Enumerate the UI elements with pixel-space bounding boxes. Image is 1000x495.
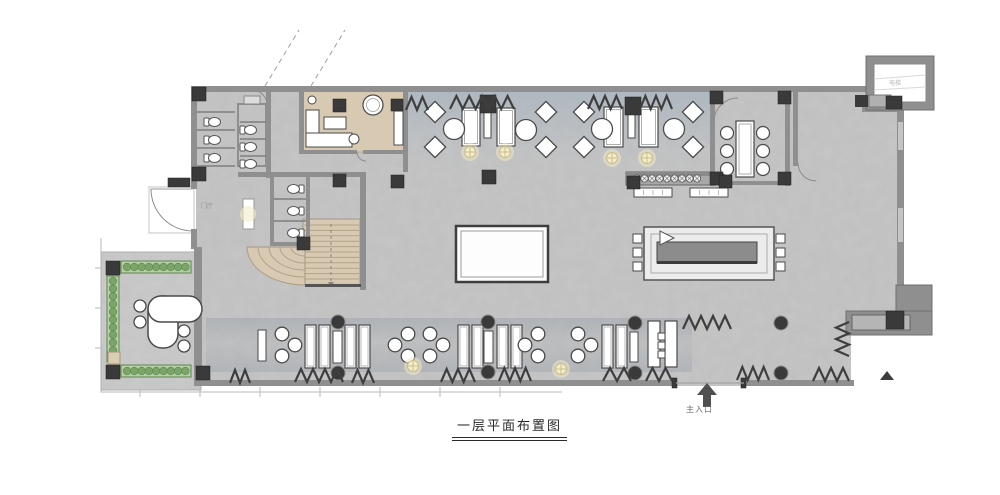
- bar-stool: [633, 262, 642, 271]
- round-column: [481, 365, 495, 379]
- column: [482, 170, 496, 184]
- plan-title: 一层平面布置图: [452, 415, 567, 441]
- lounge-chair: [571, 327, 585, 341]
- plan-shape: [245, 143, 257, 152]
- wall: [299, 150, 357, 154]
- plant: [123, 263, 131, 271]
- booth-table: [258, 330, 266, 361]
- round-column: [481, 315, 495, 329]
- toilet-icon: [288, 207, 305, 216]
- toilet-icon: [204, 136, 221, 145]
- column: [192, 167, 206, 181]
- lounge-chair: [288, 338, 302, 352]
- plan-shape: [288, 207, 300, 216]
- round-column: [331, 315, 345, 329]
- lounge-chair: [275, 349, 289, 363]
- toilet-icon: [204, 154, 221, 163]
- plant: [145, 367, 153, 375]
- plant: [109, 277, 117, 285]
- office-deco: [308, 96, 316, 104]
- office-stool: [349, 134, 359, 144]
- planter-box: [108, 352, 120, 364]
- wall: [785, 90, 790, 186]
- plant: [109, 331, 117, 339]
- plant: [131, 367, 139, 375]
- garden-chair: [134, 300, 146, 312]
- round-column: [774, 366, 788, 380]
- plant: [160, 367, 168, 375]
- dashed-projection-line: [311, 30, 345, 86]
- plant: [109, 339, 117, 347]
- wall-fixture: [244, 96, 260, 104]
- main-entrance-label: 主入口: [686, 404, 713, 415]
- plan-shape: [209, 154, 221, 163]
- floorplan-canvas: 门厅 电梯 主入口 一层平面布置图: [0, 0, 1000, 495]
- column: [778, 91, 791, 104]
- office-table: [324, 117, 346, 129]
- plant: [131, 263, 139, 271]
- toilet-icon: [288, 185, 305, 194]
- lounge-chair: [401, 327, 415, 341]
- plan-shape: [245, 126, 257, 135]
- back-bar-edge: [657, 261, 757, 264]
- plant: [138, 263, 146, 271]
- wall: [238, 172, 366, 177]
- central-feature: [456, 226, 548, 282]
- plant: [123, 367, 131, 375]
- lounge-chair: [518, 338, 532, 352]
- column: [106, 261, 120, 275]
- toilet-icon: [240, 126, 257, 135]
- stair-bottom-wall: [305, 284, 361, 287]
- bar-stool: [776, 262, 785, 271]
- toilet-icon: [240, 143, 257, 152]
- corner-triangle-marker: [880, 371, 894, 380]
- lounge-chair: [423, 327, 437, 341]
- toilet-icon: [240, 160, 257, 169]
- booth-seat: [345, 325, 356, 368]
- garden-table: [148, 296, 202, 322]
- bar-stool: [633, 248, 642, 257]
- wall-opening: [898, 208, 903, 242]
- elevator-label: 电梯: [889, 78, 901, 87]
- column: [886, 96, 902, 109]
- wall: [363, 150, 405, 154]
- office-sofa: [306, 133, 352, 147]
- column: [333, 174, 346, 187]
- side-table: [658, 333, 665, 340]
- plan-shape: [245, 160, 257, 169]
- column: [391, 175, 404, 188]
- wall: [360, 177, 366, 290]
- plan-shape: [209, 118, 221, 127]
- lounge-chair: [423, 349, 437, 363]
- plan-shape: [209, 136, 221, 145]
- bar-counter: [633, 227, 785, 280]
- plant: [152, 263, 160, 271]
- back-bar: [657, 242, 757, 263]
- lounge-chair: [531, 327, 545, 341]
- column: [192, 87, 206, 101]
- office-round-table: [363, 95, 383, 115]
- column: [886, 311, 904, 329]
- column: [625, 97, 641, 115]
- column: [333, 99, 346, 112]
- plant: [182, 263, 190, 271]
- private-chair: [757, 127, 770, 140]
- entry-alcove: [149, 187, 194, 233]
- plant: [109, 323, 117, 331]
- garden-chair: [178, 340, 190, 352]
- lounge-chair: [436, 338, 450, 352]
- lounge-chair: [531, 349, 545, 363]
- plant: [152, 367, 160, 375]
- booth-seat: [305, 325, 316, 368]
- round-table: [592, 119, 613, 140]
- office-cabinet: [394, 111, 403, 145]
- column: [391, 99, 403, 111]
- feature-table: [456, 226, 548, 282]
- private-chair: [721, 127, 734, 140]
- wall: [191, 229, 197, 249]
- column: [168, 178, 190, 187]
- booth-seat: [497, 325, 508, 368]
- private-chair: [757, 145, 770, 158]
- lounge-chair: [584, 338, 598, 352]
- plant: [109, 316, 117, 324]
- plan-shape: [288, 185, 300, 194]
- garden-chair: [178, 325, 190, 337]
- booth-seat: [458, 325, 469, 368]
- plant: [109, 308, 117, 316]
- lounge-chair: [571, 349, 585, 363]
- plan-shape: [288, 229, 300, 238]
- bar-stool: [776, 234, 785, 243]
- column: [778, 172, 791, 185]
- service-stand: [484, 112, 491, 138]
- plant: [160, 263, 168, 271]
- booth-seat: [665, 321, 677, 367]
- wall: [191, 86, 872, 92]
- wall-opening: [898, 122, 903, 150]
- plant: [138, 367, 146, 375]
- booth-table: [484, 331, 493, 363]
- booth-seat: [472, 325, 483, 368]
- wall: [299, 86, 304, 152]
- lamp-glow: [240, 206, 256, 222]
- plant: [174, 367, 182, 375]
- booth-seat: [359, 325, 370, 368]
- wall: [270, 172, 274, 246]
- booth-table: [333, 331, 342, 363]
- booth-table: [630, 332, 638, 362]
- side-table: [658, 342, 665, 349]
- wall: [403, 86, 408, 172]
- wall: [793, 90, 798, 166]
- plant: [145, 263, 153, 271]
- column: [710, 91, 723, 104]
- column: [719, 175, 732, 188]
- plant: [182, 367, 190, 375]
- round-column: [774, 316, 788, 330]
- side-table: [658, 351, 665, 358]
- plant: [167, 367, 175, 375]
- private-chair: [757, 163, 770, 176]
- booth-seat: [319, 325, 330, 368]
- plant: [109, 293, 117, 301]
- column: [297, 237, 310, 250]
- service-stand: [628, 112, 635, 138]
- lounge-chair: [388, 338, 402, 352]
- round-column: [628, 316, 642, 330]
- wall: [306, 172, 310, 246]
- column: [627, 176, 640, 189]
- column: [106, 365, 120, 379]
- console-block: [855, 95, 868, 107]
- foyer-label: 门厅: [201, 201, 213, 210]
- garden-chair: [134, 316, 146, 328]
- private-chair: [721, 145, 734, 158]
- bar-stool: [633, 234, 642, 243]
- bar-stool: [776, 248, 785, 257]
- plant: [109, 285, 117, 293]
- lounge-chair: [275, 327, 289, 341]
- round-table: [444, 119, 465, 140]
- plant: [174, 263, 182, 271]
- plant: [109, 300, 117, 308]
- column: [196, 366, 210, 380]
- round-table: [516, 120, 537, 141]
- dashed-projection-line: [265, 30, 299, 86]
- toilet-icon: [204, 118, 221, 127]
- toilet-icon: [288, 229, 305, 238]
- plant: [167, 263, 175, 271]
- round-table: [664, 119, 685, 140]
